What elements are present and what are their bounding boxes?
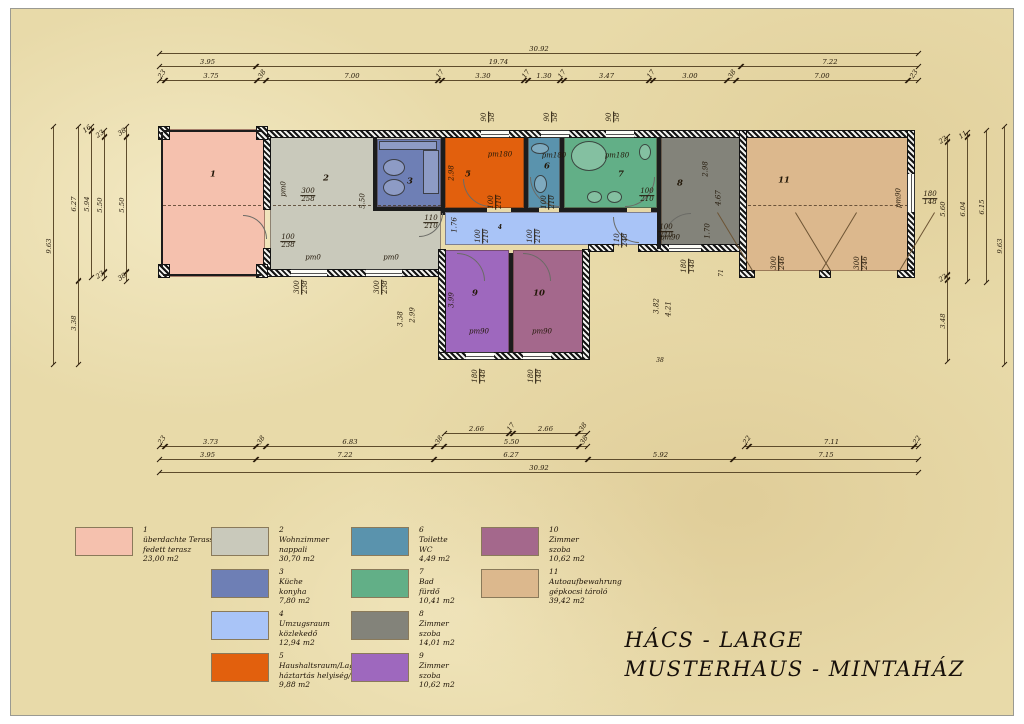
legend-swatch-11	[481, 569, 539, 598]
fixture	[383, 179, 405, 196]
wall	[373, 137, 377, 211]
plan-label: 1.76	[451, 217, 458, 233]
title-line-2: MUSTERHAUS - MINTAHÁZ	[624, 655, 965, 683]
dimension: 5.92	[588, 459, 733, 460]
plan-label: 100210	[488, 194, 504, 209]
dimension: 7.00	[266, 80, 438, 81]
plan-label: 100210	[475, 228, 491, 243]
plan-label: pm0	[305, 254, 321, 261]
legend-text-line: Autoaufbewahrung	[549, 577, 679, 587]
plan-label: 11	[778, 177, 790, 186]
plan-label: 8	[677, 180, 683, 189]
wall	[509, 253, 513, 353]
window	[523, 352, 551, 360]
dimension: 3.00	[653, 80, 727, 81]
plan-label: pm180	[542, 152, 566, 159]
plan-label: 100210	[527, 228, 543, 243]
plan-label: 9058	[606, 112, 622, 123]
wall	[439, 353, 589, 359]
plan-label: 110210	[423, 215, 438, 231]
dimension: 5.94	[91, 131, 92, 277]
fixture	[571, 141, 607, 171]
wall	[441, 137, 445, 215]
plan-label: 2.98	[448, 165, 455, 181]
dimension: 1.30	[528, 80, 560, 81]
window	[366, 269, 402, 277]
drawing-sheet-page: { "title": {"line1": "HÁCS - LARGE", "li…	[0, 0, 1024, 724]
wall	[264, 137, 270, 209]
dimension: 6.27	[78, 127, 79, 281]
legend-swatch-9	[351, 653, 409, 682]
legend-text-line: 9	[419, 651, 549, 661]
dimension: 19.74	[256, 66, 741, 67]
plan-label: 300238	[374, 279, 390, 294]
section-line	[163, 205, 441, 206]
dimension: 3.75	[165, 80, 257, 81]
dimension: 7.22	[256, 459, 434, 460]
fixture	[639, 144, 651, 160]
dimension: 5.50	[444, 446, 579, 447]
plan-label: 100210	[658, 224, 673, 240]
dimension: 6.04	[967, 137, 968, 281]
plan-label: 1	[210, 171, 216, 180]
dimension: 30.92	[159, 53, 919, 54]
legend-text-line: Zimmer	[419, 619, 549, 629]
dimension: 6.27	[434, 459, 588, 460]
plan-label: 9058	[481, 112, 497, 123]
dimension: 7.00	[736, 80, 908, 81]
wall	[820, 271, 830, 277]
legend-swatch-7	[351, 569, 409, 598]
room-1	[161, 129, 265, 277]
plan-label: 38	[656, 358, 664, 364]
plan-label: 100210	[541, 194, 557, 209]
wall	[740, 271, 754, 277]
wall	[651, 208, 657, 212]
title-line-1: HÁCS - LARGE	[624, 626, 965, 654]
plan-label: 100210	[639, 188, 654, 204]
legend-text-line: szoba	[419, 671, 549, 681]
legend-text-line: 10	[549, 525, 679, 535]
plan-label: 4	[498, 225, 502, 231]
wall	[163, 130, 261, 132]
dimension: 2.66	[513, 433, 578, 434]
legend-text-line: Zimmer	[419, 661, 549, 671]
wall	[161, 132, 163, 267]
fixture	[383, 159, 405, 176]
window	[481, 130, 509, 138]
legend-swatch-4	[211, 611, 269, 640]
fixture	[587, 191, 602, 203]
wall	[511, 208, 539, 212]
dimension: 38	[579, 446, 588, 447]
wall	[257, 127, 267, 139]
plan-label: 2.99	[409, 307, 416, 323]
dimension: 7.22	[741, 66, 919, 67]
plan-label: pm90	[895, 188, 902, 208]
dimension: 3.30	[442, 80, 524, 81]
plan-label: 3.82	[653, 298, 660, 314]
section-line	[748, 205, 908, 206]
legend-item-9: 9Zimmerszoba10,62 m2	[419, 651, 549, 690]
legend-swatch-10	[481, 527, 539, 556]
dimension: 6.15	[986, 131, 987, 282]
plan-label: pm0	[280, 181, 287, 197]
plan-label: 300238	[294, 279, 310, 294]
dimension: 38	[126, 272, 127, 281]
dimension: 9.63	[53, 127, 54, 364]
plan-label: 6	[544, 163, 550, 172]
dimension: 23	[908, 80, 919, 81]
plan-label: 4.67	[715, 190, 722, 206]
legend-swatch-5	[211, 653, 269, 682]
dimension: 5.50	[104, 137, 105, 272]
legend-swatch-8	[351, 611, 409, 640]
legend-text-line: szoba	[549, 545, 679, 555]
fixture	[534, 175, 547, 193]
plan-label: pm90	[469, 328, 489, 335]
wall	[163, 274, 261, 276]
dimension: 3.48	[947, 280, 948, 361]
wall	[439, 250, 445, 359]
plan-label: pm180	[488, 151, 512, 158]
dimension: 2.66	[444, 433, 509, 434]
plan-label: 3.99	[448, 292, 455, 308]
legend-swatch-2	[211, 527, 269, 556]
window	[606, 130, 634, 138]
plan-label: 4.21	[665, 301, 672, 317]
wall	[560, 137, 564, 212]
fixture	[607, 191, 622, 203]
fixture	[423, 150, 439, 194]
dimension: 7.11	[749, 446, 914, 447]
legend-text-line: 10,62 m2	[549, 554, 679, 564]
plan-label: 100238	[280, 234, 295, 250]
plan-label: 300258	[300, 188, 315, 204]
legend-text-line: 11	[549, 567, 679, 577]
dimension: 3.38	[78, 281, 79, 364]
wall	[898, 271, 914, 277]
legend-text-line: Zimmer	[549, 535, 679, 545]
legend-swatch-1	[75, 527, 133, 556]
window	[669, 244, 701, 252]
dimension: 5.60	[947, 142, 948, 275]
plan-label: 2.98	[702, 161, 709, 177]
plan-label: 9	[472, 290, 478, 299]
legend-item-11: 11Autoaufbewahrunggépkocsi tároló39,42 m…	[549, 567, 679, 606]
plan-label: 180148	[528, 368, 544, 383]
wall	[524, 137, 528, 212]
plan-label: 180148	[922, 191, 937, 207]
window	[907, 174, 915, 212]
legend-item-10: 10Zimmerszoba10,62 m2	[549, 525, 679, 564]
plan-label: 180148	[681, 258, 697, 273]
plan-label: 10	[533, 290, 545, 299]
plan-label: 2	[323, 175, 329, 184]
wall	[373, 207, 445, 211]
dimension: 30.92	[159, 472, 919, 473]
legend-text-line: 8	[419, 609, 549, 619]
window	[291, 269, 327, 277]
window	[466, 352, 494, 360]
plan-label: 3.38	[397, 311, 404, 327]
dimension: 3.47	[564, 80, 649, 81]
wall	[559, 208, 627, 212]
legend-item-8: 8Zimmerszoba14,01 m2	[419, 609, 549, 648]
wall	[589, 245, 613, 251]
legend-text-line: gépkocsi tároló	[549, 587, 679, 597]
plan-label: pm180	[605, 152, 629, 159]
plan-label: 180148	[472, 368, 488, 383]
parchment-sheet: 1234567891011pm0pm0pm0pm180pm180pm180pm9…	[10, 8, 1014, 716]
dimension: 7.15	[733, 459, 919, 460]
dimension: 3.95	[159, 66, 256, 67]
legend-text-line: 39,42 m2	[549, 596, 679, 606]
dimension: 3.95	[159, 459, 256, 460]
wall	[583, 250, 589, 359]
legend-text-line: 10,62 m2	[419, 680, 549, 690]
plan-label: 5	[465, 171, 471, 180]
legend-text-line: szoba	[419, 629, 549, 639]
plan-label: 300246	[854, 255, 870, 270]
wall	[746, 131, 914, 137]
dimension: 22	[914, 446, 919, 447]
plan-label: 9058	[544, 112, 560, 123]
plan-label: pm0	[383, 254, 399, 261]
plan-label: 3	[407, 178, 413, 187]
plan-label: 110248	[614, 232, 630, 247]
dimension: 5.50	[126, 137, 127, 272]
dimension: 9.63	[1004, 127, 1005, 364]
plan-label: 7	[618, 171, 624, 180]
garage-door-swing	[752, 213, 822, 271]
drawing-title: HÁCS - LARGE MUSTERHAUS - MINTAHÁZ	[624, 626, 965, 683]
fixture	[379, 141, 437, 150]
legend-text-line: 14,01 m2	[419, 638, 549, 648]
plan-label: 71	[719, 269, 725, 277]
plan-label: 1.70	[704, 223, 711, 239]
window	[541, 130, 569, 138]
plan-label: pm90	[532, 328, 552, 335]
legend-swatch-6	[351, 527, 409, 556]
legend-swatch-3	[211, 569, 269, 598]
plan-label: 5.50	[359, 193, 366, 209]
wall	[445, 208, 487, 212]
dimension: 23	[104, 272, 105, 278]
dimension: 3.73	[165, 446, 256, 447]
plan-label: 300246	[771, 255, 787, 270]
dimension: 6.83	[266, 446, 434, 447]
